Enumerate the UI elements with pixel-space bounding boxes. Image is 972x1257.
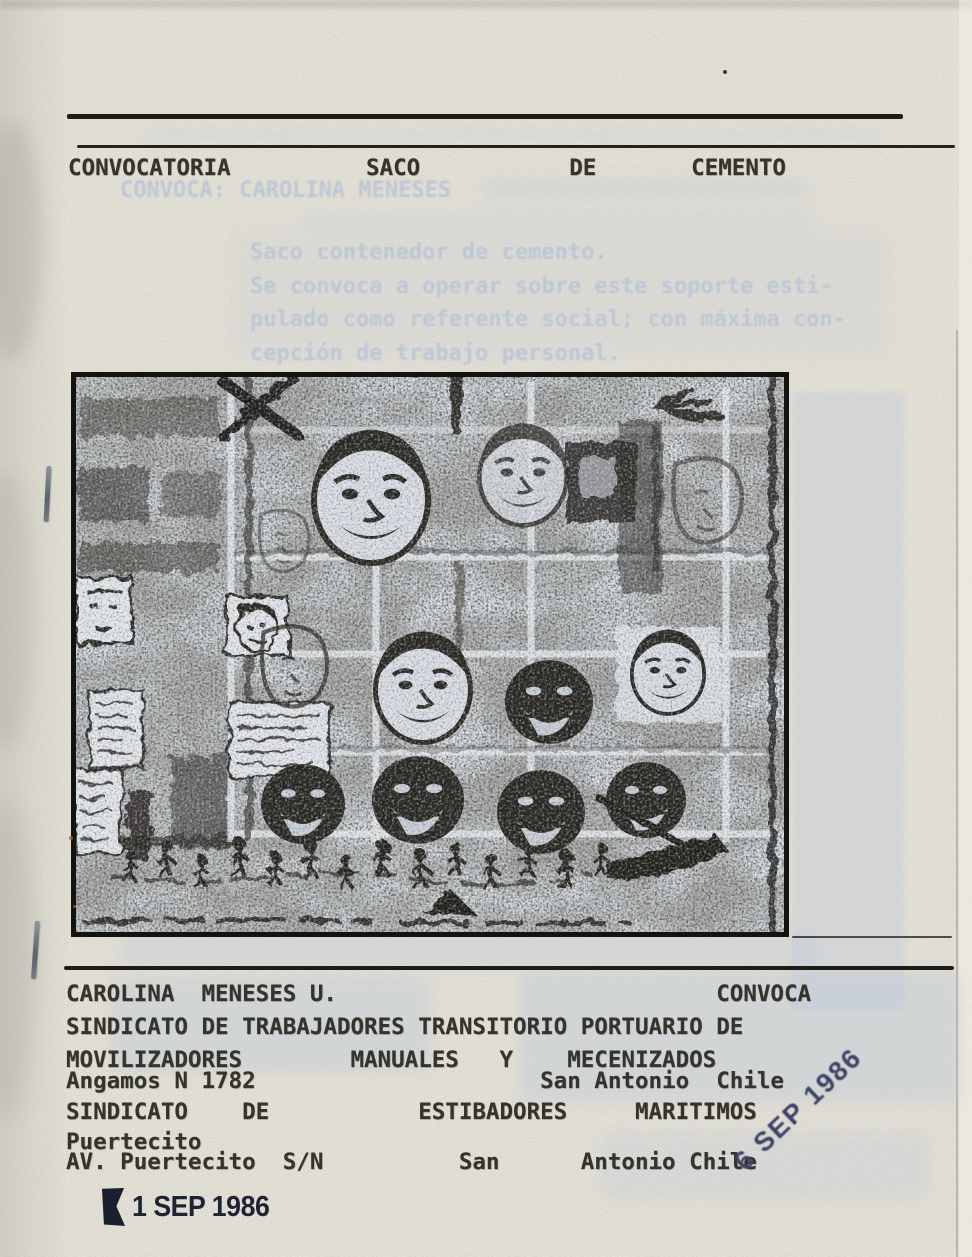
artwork-photocopy (71, 372, 789, 937)
bleedthrough-blob-under-image (120, 933, 820, 968)
footer-line-union-1: SINDICATO DE TRABAJADORES TRANSITORIO PO… (66, 1014, 743, 1040)
page-title: CONVOCATORIA SACO DE CEMENTO (68, 155, 786, 181)
footer-top-rule (64, 966, 954, 970)
top-rule-2 (77, 145, 955, 148)
ink-speck (723, 70, 727, 74)
top-rule-1 (67, 114, 903, 119)
ghost-heading: CONVOCA: CAROLINA MENESES (120, 178, 451, 203)
image-bottom-rule-extension (792, 936, 952, 938)
footer-line-union-3: SINDICATO DE ESTIBADORES MARITIMOS (66, 1099, 757, 1125)
bleedthrough-rect-right-of-image (792, 392, 904, 1010)
bleedthrough-blob-heading (480, 178, 810, 200)
footer-line-address-1: Angamos N 1782 San Antonio Chile (66, 1068, 784, 1094)
stamp-ink-blob (102, 1188, 126, 1226)
stamp-date-text: 1 SEP 1986 (132, 1191, 269, 1224)
ghost-line-4: cepción de trabajo personal. (250, 337, 846, 371)
ghost-line-2: Se convoca a operar sobre este soporte e… (250, 270, 846, 304)
footer-line-address-2: AV. Puertecito S/N San Antonio Chile (66, 1149, 757, 1175)
bleedthrough-blob-rule (140, 128, 880, 144)
footer-line-convoker: CAROLINA MENESES U. CONVOCA (66, 981, 811, 1007)
rust-speck-2 (73, 905, 76, 908)
rust-speck-1 (69, 836, 73, 840)
date-stamp-bottom: 1 SEP 1986 (102, 1188, 281, 1226)
bleedthrough-blob-line2 (300, 210, 820, 228)
ghost-paragraph: Saco contenedor de cemento. Se convoca a… (250, 236, 846, 370)
ghost-line-1: Saco contenedor de cemento. (250, 236, 846, 270)
ghost-line-3: pulado como referente social; con máxima… (250, 303, 846, 337)
scanned-document-page: CONVOCA: CAROLINA MENESES Saco contenedo… (0, 0, 972, 1257)
